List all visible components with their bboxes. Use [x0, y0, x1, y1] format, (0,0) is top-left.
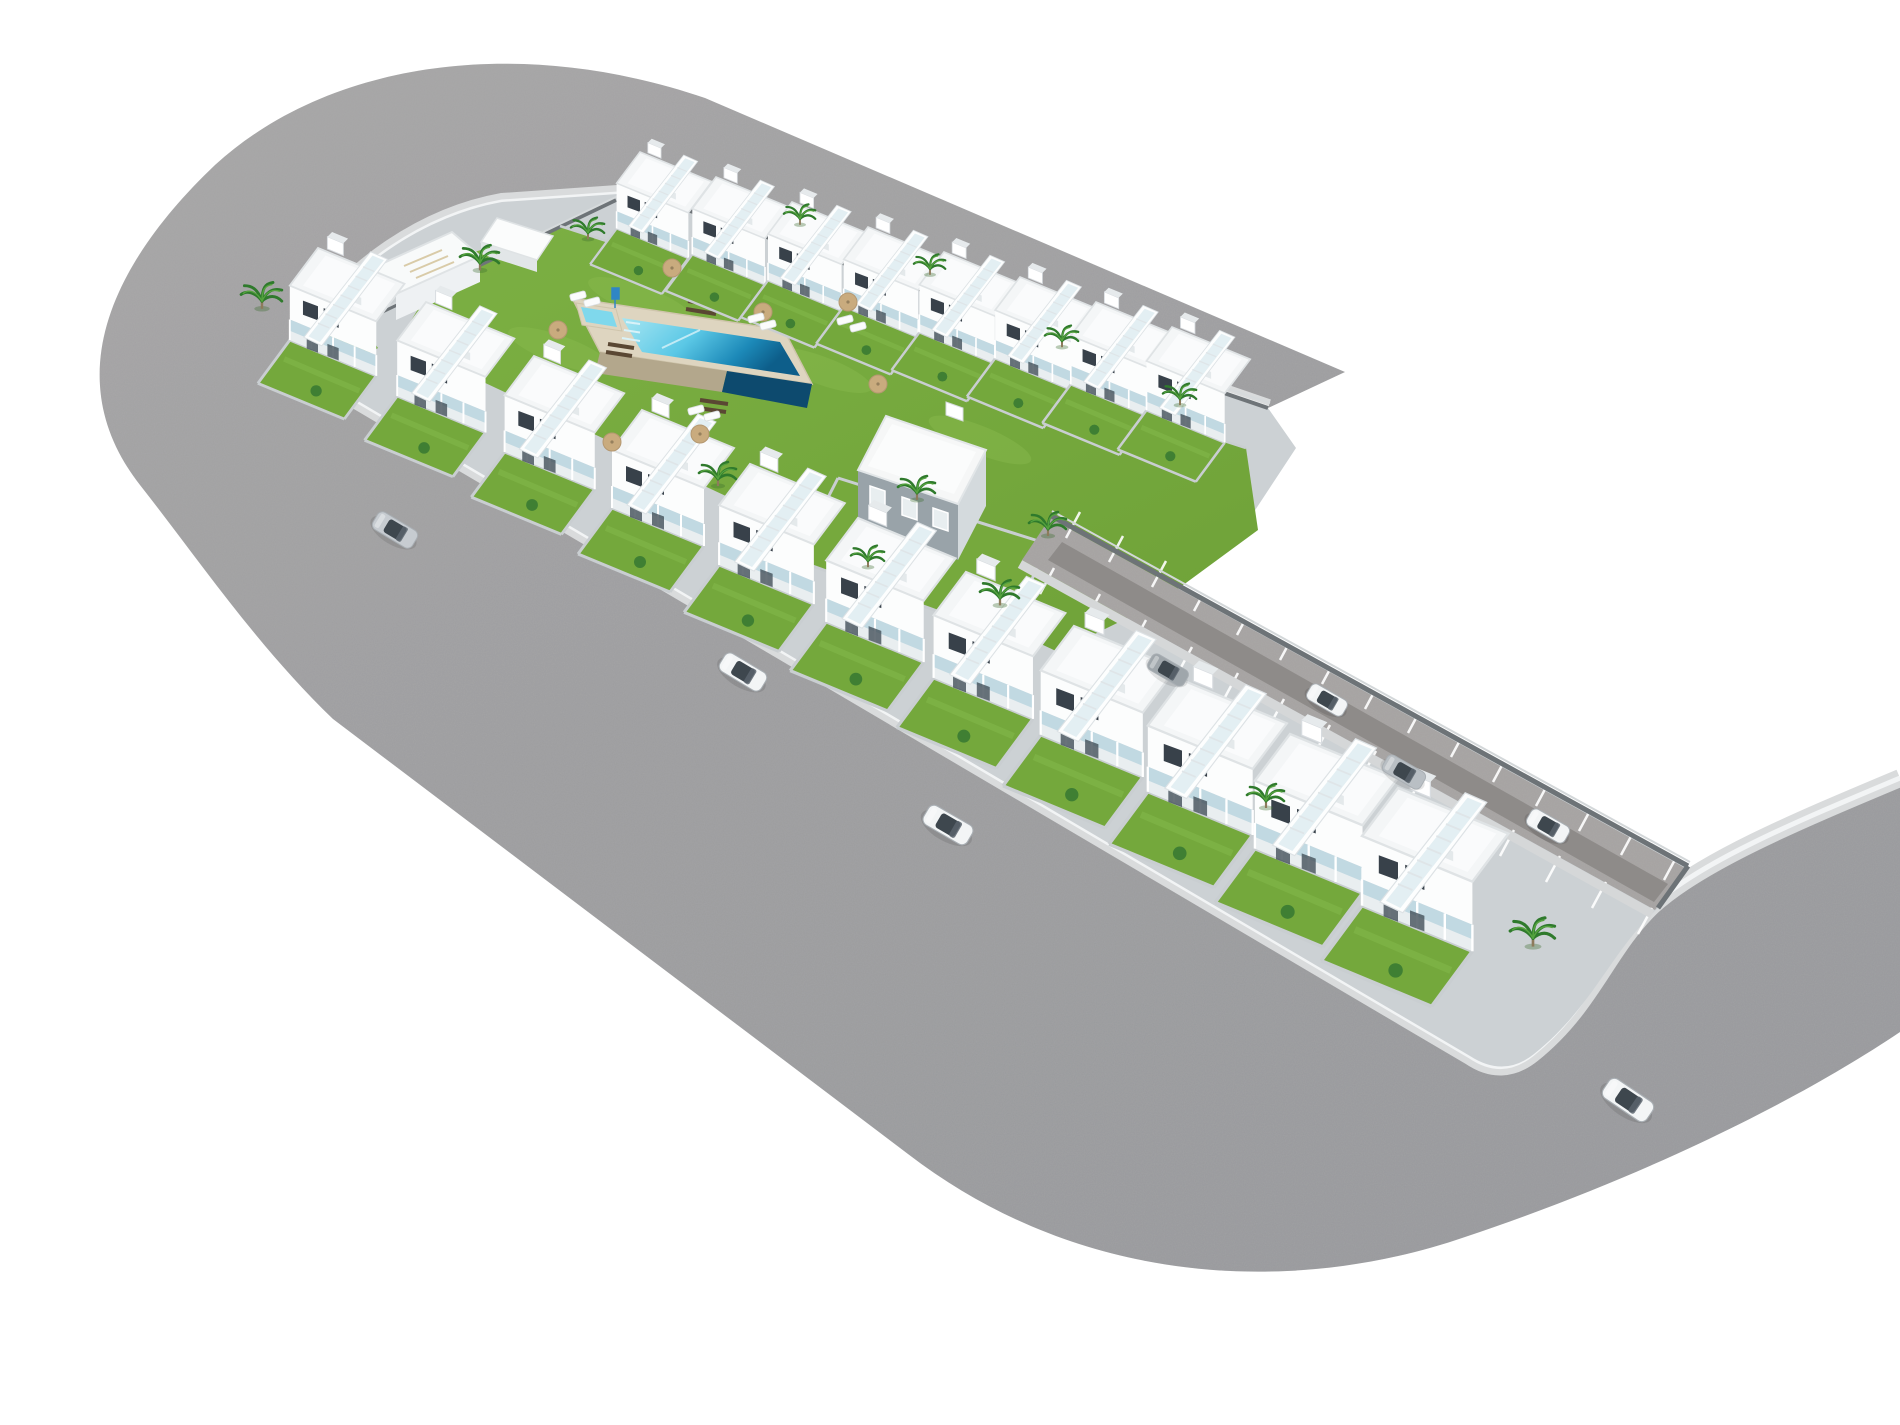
parasol: [603, 433, 621, 451]
parasol: [549, 321, 567, 339]
parasol: [839, 293, 857, 311]
render-canvas: [0, 0, 1900, 1425]
parasol: [869, 375, 887, 393]
parasol: [691, 425, 709, 443]
parasol: [663, 259, 681, 277]
aerial-development-render: [0, 0, 1900, 1425]
